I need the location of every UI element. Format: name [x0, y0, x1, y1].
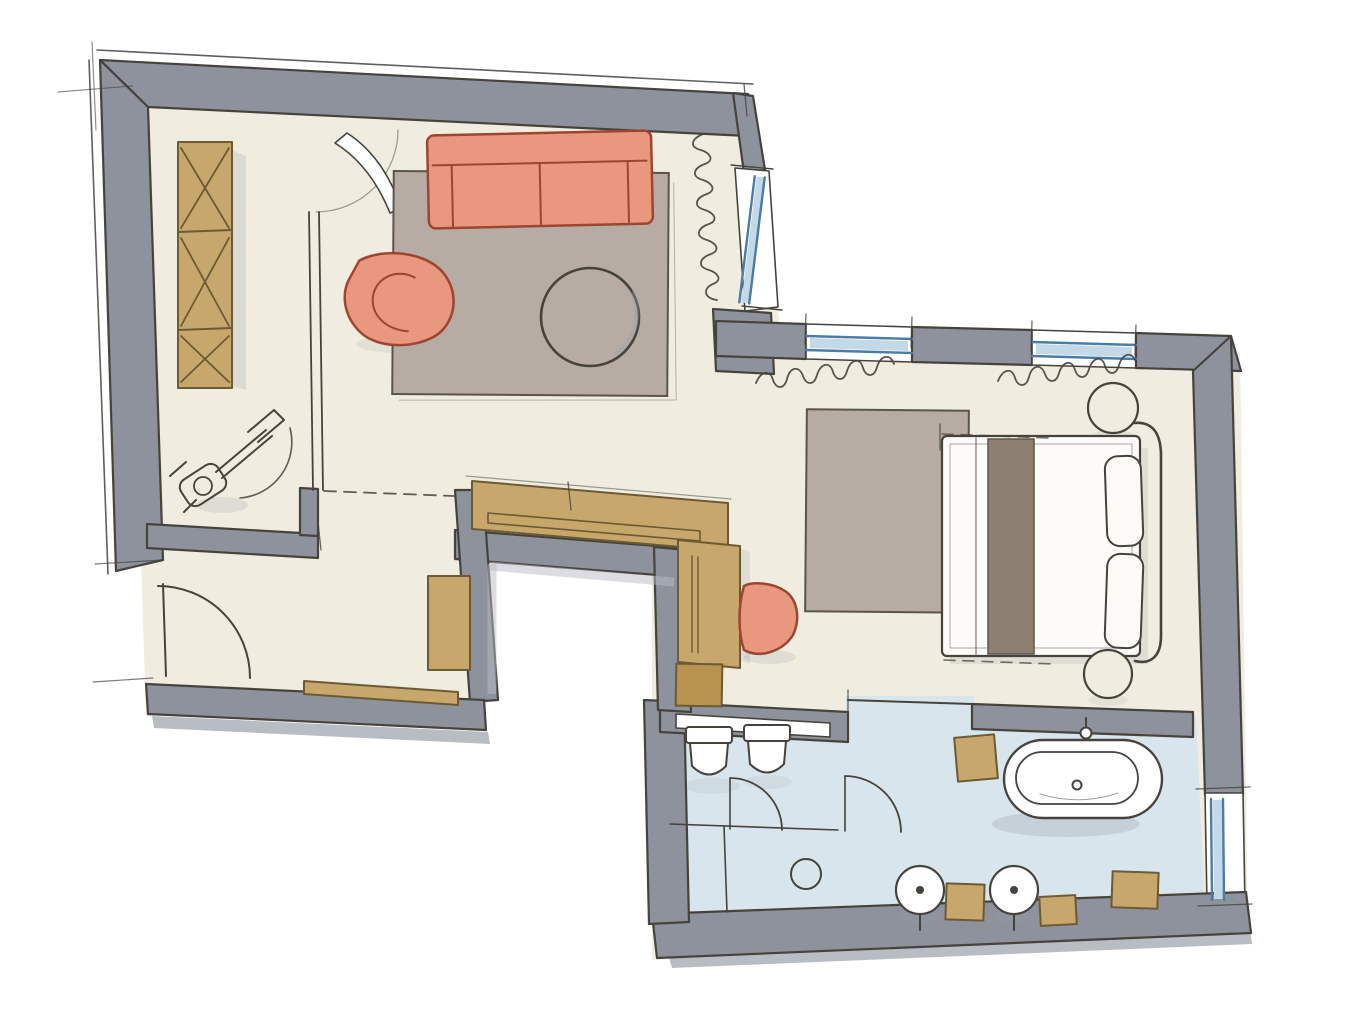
- wall-hung-toilet: [744, 725, 790, 773]
- pillow: [1104, 455, 1143, 546]
- wall-bedroom-top-2: [912, 327, 1032, 365]
- wood-cube: [676, 664, 723, 707]
- toilet1-shadow: [684, 778, 740, 794]
- basin-tap-dot: [1010, 886, 1018, 894]
- glazing-line: [1211, 799, 1212, 900]
- hall-cabinet: [428, 576, 470, 670]
- basin-tap-dot: [916, 886, 924, 894]
- wooden-stool: [1039, 895, 1076, 926]
- bed-runner: [988, 439, 1034, 654]
- toilet-tank: [744, 725, 790, 741]
- wooden-stool: [1111, 871, 1158, 909]
- tub-faucet: [1081, 728, 1092, 739]
- sofa-arm-line: [452, 165, 453, 226]
- wall-hung-toilet: [686, 727, 732, 775]
- toilet-tank: [686, 727, 732, 743]
- wall-hall-stub: [300, 488, 318, 536]
- floor-plan-drawing: [0, 0, 1366, 1024]
- sofa-cushion-split: [540, 163, 541, 224]
- living-room-furniture: [343, 130, 678, 402]
- jamb-tick: [93, 678, 153, 682]
- tall-closet: [678, 540, 740, 668]
- glazing-line: [1223, 799, 1224, 900]
- construction-line: [92, 42, 96, 130]
- wooden-stool: [945, 883, 984, 920]
- toilet-bowl: [690, 743, 728, 775]
- sofa-arm-line: [628, 161, 629, 222]
- wooden-stool: [954, 734, 998, 781]
- valet-shadow: [196, 497, 248, 513]
- x-braced-shelf: [178, 142, 232, 388]
- floor-plan-page: [0, 0, 1366, 1024]
- toilet-bowl: [748, 741, 786, 773]
- sofa-group: [427, 130, 653, 228]
- round-nightstand: [1084, 650, 1132, 698]
- wall-bedroom-top-1: [716, 321, 806, 359]
- pillow: [1104, 553, 1143, 648]
- wardrobe-shadow: [232, 150, 246, 390]
- round-nightstand: [1088, 383, 1138, 433]
